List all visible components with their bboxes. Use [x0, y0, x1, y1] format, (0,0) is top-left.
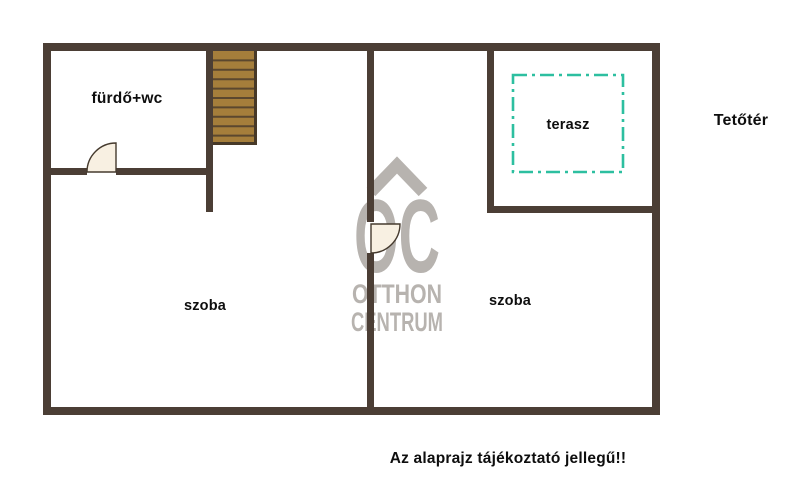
- wall-right: [652, 43, 660, 415]
- wall-left: [43, 43, 51, 415]
- watermark-line1: OTTHON: [352, 279, 442, 309]
- attic-label: Tetőtér: [714, 112, 768, 129]
- terrace-label: terasz: [546, 117, 589, 133]
- wall-terrace-bottom: [487, 206, 652, 213]
- wall-middle-lower: [367, 253, 374, 407]
- floor-plan-drawing: OC OTTHON CENTRUM: [0, 0, 798, 500]
- bathroom-door-swing: [87, 143, 116, 172]
- disclaimer-note: Az alaprajz tájékoztató jellegű!!: [390, 450, 627, 467]
- wall-bathroom-bottom-right: [116, 168, 213, 175]
- watermark-line2: CENTRUM: [351, 307, 443, 337]
- wall-bathroom-bottom-left: [51, 168, 87, 175]
- wall-bottom: [43, 407, 660, 415]
- room-left-label: szoba: [184, 298, 227, 314]
- watermark-logo: OC OTTHON CENTRUM: [351, 165, 443, 337]
- wall-middle-upper: [367, 51, 374, 222]
- wall-terrace-left: [487, 51, 494, 213]
- wall-top: [43, 43, 660, 51]
- staircase: [213, 51, 257, 145]
- floor-plan-page: OC OTTHON CENTRUM: [0, 0, 798, 500]
- bathroom-label: fürdő+wc: [92, 90, 163, 107]
- room-right-label: szoba: [489, 293, 532, 309]
- wall-bathroom-right: [206, 51, 213, 212]
